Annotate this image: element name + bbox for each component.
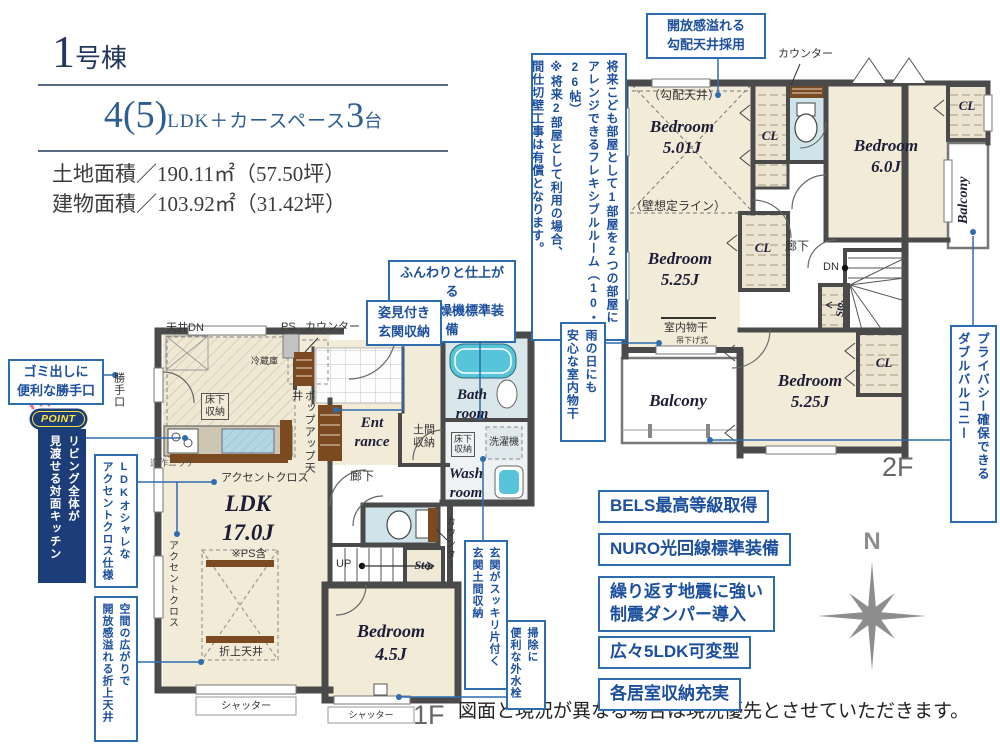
feature-bels: BELS最高等級取得 (598, 490, 769, 523)
counter-vertical-label: カウンター (443, 516, 455, 576)
room-label-wash: Wash room (449, 465, 483, 503)
counter-label-2f: カウンター (778, 48, 833, 61)
car-count: 3 (346, 95, 364, 135)
callout-double-balcony: プライバシー確保できる ダブルバルコニー (950, 325, 997, 523)
balcony-right-label: Balcony (955, 160, 973, 240)
back-door-label: 勝手口 (112, 372, 125, 424)
shutter-label-1: シャッター (221, 701, 271, 713)
point-badge: POINT (32, 411, 85, 427)
storage-label-1f: Sto. (414, 558, 433, 573)
page-title: 1号棟 (52, 26, 127, 79)
flyer-page: 1号棟 4(5)LDK＋カースペース3台 土地面積／190.11㎡（57.50坪… (0, 0, 1000, 750)
washer-label: 洗濯機 (489, 437, 519, 449)
accent-cloth-vertical-label: アクセントクロス (166, 540, 178, 630)
compass-rose-icon (818, 562, 926, 670)
drying-type-label: 吊下げ式 (676, 336, 708, 345)
callout-coffered-ceiling: 空間の広がりで 開放感溢れる折上天井 (94, 596, 138, 742)
callout-sloped-ceiling: 開放感溢れる 勾配天井採用 (646, 13, 766, 59)
ldk-note: ※PS含 (232, 548, 267, 561)
floor1-label: 1F (413, 700, 445, 731)
building-area: 建物面積／103.92㎡（31.42坪） (52, 192, 346, 216)
storage-label-2f: Sto. (834, 290, 848, 326)
unit-suffix: 号棟 (75, 44, 127, 73)
plan-type: LDK＋カースペース (167, 111, 346, 132)
plan-summary: 4(5)LDK＋カースペース3台 (38, 94, 448, 138)
counter-top-label: カウンター (305, 321, 360, 334)
callout-outdoor-faucet: 掃除に 便利な外水栓 (506, 620, 546, 710)
indoor-drying-label: 室内物干 (664, 322, 708, 335)
cl-label-a: CL (762, 128, 779, 144)
room-label-bedroom45: Bedroom 4.5J (357, 620, 425, 665)
callout-accent-cloth: LDKオシャレな アクセントクロス仕様 (94, 454, 138, 588)
niche-label: 造作ニッチ (150, 458, 195, 468)
room-label-bedroom525a: Bedroom 5.25J (648, 248, 712, 291)
wall-line-label: （壁想定ライン） (630, 200, 726, 214)
unit-number: 1 (52, 26, 75, 77)
callout-entrance-storage: 玄関がスッキリ片付く 玄関土間収納 (464, 540, 508, 690)
feature-damper: 繰り返す地震に強い 制震ダンパー導入 (598, 576, 775, 632)
doma-storage-label: 土間 収納 (413, 424, 435, 449)
hallway-label-2f: 廊下 (785, 240, 809, 254)
room-label-ldk: LDK 17.0J (222, 490, 274, 548)
hallway-label-1f: 廊下 (350, 470, 374, 484)
sloped-ceiling-label: （勾配天井） (648, 89, 720, 103)
callout-flexible-room: 将来こども部屋として1部屋を2つの部屋に アレンジできるフレキシブルルーム（10… (531, 53, 627, 341)
room-label-bedroom525b: Bedroom 5.25J (778, 370, 842, 413)
compass-north-label: N (863, 528, 880, 556)
room-label-bath: Bath room (456, 386, 489, 424)
cl-label-d: CL (876, 355, 893, 371)
popup-ceiling-label: ポップアップ天井 (290, 390, 315, 480)
accent-cloth-label: アクセントクロス (221, 472, 308, 485)
balcony-left-label: Balcony (649, 390, 707, 411)
callout-garbage-door: ゴミ出しに 便利な勝手口 (8, 359, 104, 405)
ps-label: PS (281, 321, 296, 334)
ceiling-dn-label: 天井DN (166, 322, 204, 335)
cl-label-b: CL (959, 98, 976, 114)
car-unit: 台 (364, 111, 382, 131)
floor2-label: 2F (882, 452, 914, 483)
up-label: UP (336, 558, 351, 571)
room-label-bedroom501: Bedroom 5.01J (650, 116, 714, 159)
land-area: 土地面積／190.11㎡（57.50坪） (52, 162, 345, 186)
room-label-entrance: Ent rance (355, 414, 390, 452)
feature-storage: 各居室収納充実 (598, 678, 741, 711)
floor-storage-label: 床下 収納 (201, 393, 229, 420)
feature-5ldk: 広々5LDK可変型 (598, 636, 751, 669)
plan-count: 4(5) (104, 94, 167, 136)
room-label-bedroom60: Bedroom 6.0J (854, 135, 918, 178)
fridge-label: 冷蔵庫 (251, 356, 278, 366)
shutter-label-2: シャッター (348, 710, 393, 720)
floor-storage-label-2: 床下 収納 (451, 432, 475, 457)
callout-mirror-storage: 姿見付き 玄関収納 (366, 300, 442, 346)
feature-nuro: NURO光回線標準装備 (598, 533, 791, 566)
callout-kitchen: リビング全体が 見渡せる対面キッチン (38, 429, 86, 583)
cl-label-c: CL (755, 240, 772, 256)
coffered-ceiling-label: 折上天井 (216, 646, 266, 659)
callout-indoor-drying: 雨の日にも 安心な室内物干 (560, 322, 606, 442)
dn-label: DN (823, 261, 839, 274)
